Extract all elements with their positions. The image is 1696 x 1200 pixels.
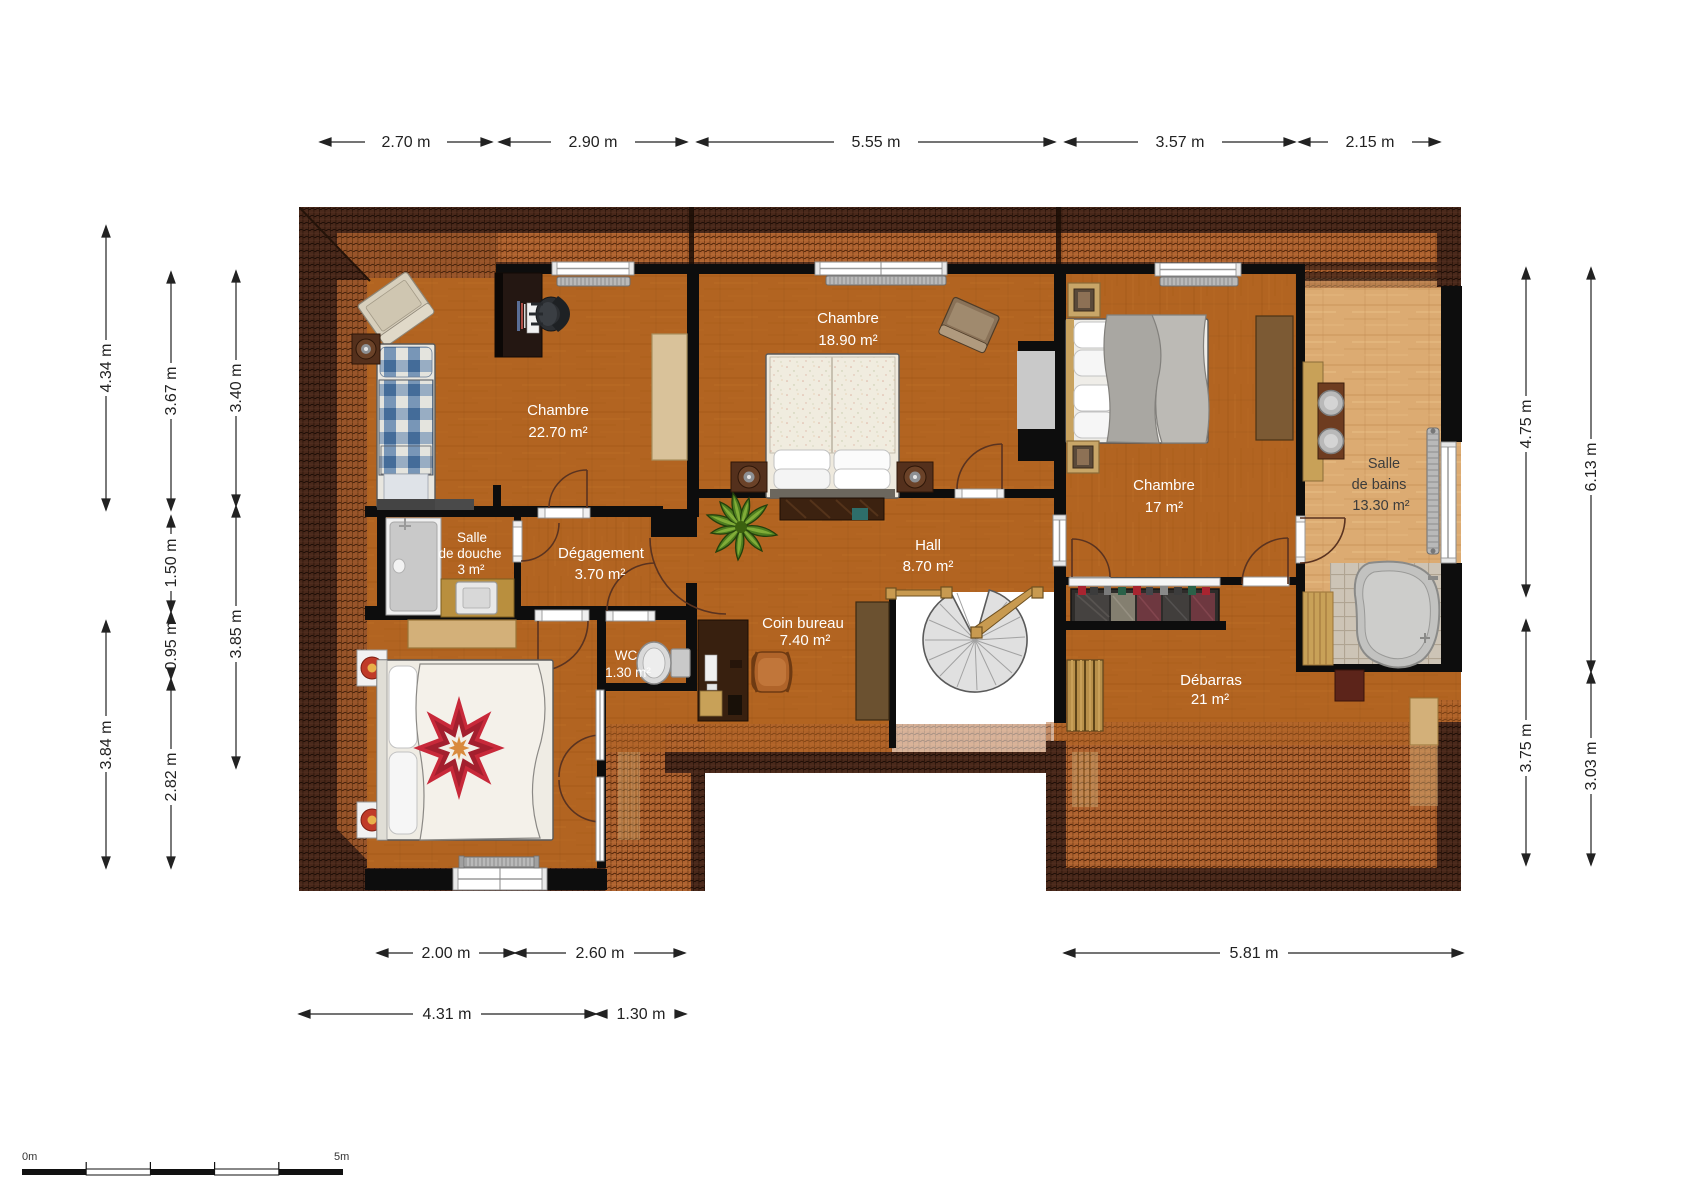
svg-text:2.60 m: 2.60 m xyxy=(576,945,625,962)
svg-text:13.30 m²: 13.30 m² xyxy=(1352,498,1409,514)
svg-text:3.75 m: 3.75 m xyxy=(1518,724,1535,773)
svg-text:3.70 m²: 3.70 m² xyxy=(575,566,626,583)
svg-text:Débarras: Débarras xyxy=(1180,672,1242,689)
svg-text:de bains: de bains xyxy=(1352,477,1407,493)
svg-text:2.90 m: 2.90 m xyxy=(569,134,618,151)
svg-text:3 m²: 3 m² xyxy=(458,562,486,577)
svg-text:Dégagement: Dégagement xyxy=(558,545,645,562)
svg-text:2.82 m: 2.82 m xyxy=(163,753,180,802)
svg-text:2.00 m: 2.00 m xyxy=(422,945,471,962)
svg-text:2.70 m: 2.70 m xyxy=(382,134,431,151)
svg-text:1.50 m: 1.50 m xyxy=(163,539,180,588)
svg-text:1.30 m: 1.30 m xyxy=(617,1006,666,1023)
svg-text:4.75 m: 4.75 m xyxy=(1518,400,1535,449)
svg-text:4.34 m: 4.34 m xyxy=(98,344,115,393)
svg-text:Chambre: Chambre xyxy=(817,310,879,327)
svg-text:7.40 m²: 7.40 m² xyxy=(780,632,831,649)
svg-text:17 m²: 17 m² xyxy=(1145,499,1183,516)
svg-text:0m: 0m xyxy=(22,1151,37,1163)
svg-text:Chambre: Chambre xyxy=(527,402,589,419)
svg-text:4.31 m: 4.31 m xyxy=(423,1006,472,1023)
svg-text:Salle: Salle xyxy=(1368,456,1400,472)
svg-text:5m: 5m xyxy=(334,1151,349,1163)
svg-text:5.55 m: 5.55 m xyxy=(852,134,901,151)
svg-text:WC: WC xyxy=(615,648,638,663)
svg-text:21 m²: 21 m² xyxy=(1191,691,1229,708)
svg-text:0.95 m: 0.95 m xyxy=(163,622,180,671)
svg-text:5.81 m: 5.81 m xyxy=(1230,945,1279,962)
svg-text:2.15 m: 2.15 m xyxy=(1346,134,1395,151)
svg-text:22.70 m²: 22.70 m² xyxy=(528,424,587,441)
svg-text:3.03 m: 3.03 m xyxy=(1583,742,1600,791)
svg-text:3.40 m: 3.40 m xyxy=(228,364,245,413)
svg-text:1.30 m²: 1.30 m² xyxy=(605,665,651,680)
svg-text:Hall: Hall xyxy=(915,537,941,554)
svg-text:3.84 m: 3.84 m xyxy=(98,721,115,770)
svg-text:Salle: Salle xyxy=(457,530,487,545)
svg-text:3.85 m: 3.85 m xyxy=(228,610,245,659)
svg-text:6.13 m: 6.13 m xyxy=(1583,443,1600,492)
svg-text:3.57 m: 3.57 m xyxy=(1156,134,1205,151)
svg-text:Chambre: Chambre xyxy=(1133,477,1195,494)
svg-text:Coin bureau: Coin bureau xyxy=(762,615,844,632)
svg-text:3.67 m: 3.67 m xyxy=(163,367,180,416)
svg-text:18.90 m²: 18.90 m² xyxy=(818,332,877,349)
svg-text:8.70 m²: 8.70 m² xyxy=(903,558,954,575)
svg-text:de douche: de douche xyxy=(438,546,501,561)
